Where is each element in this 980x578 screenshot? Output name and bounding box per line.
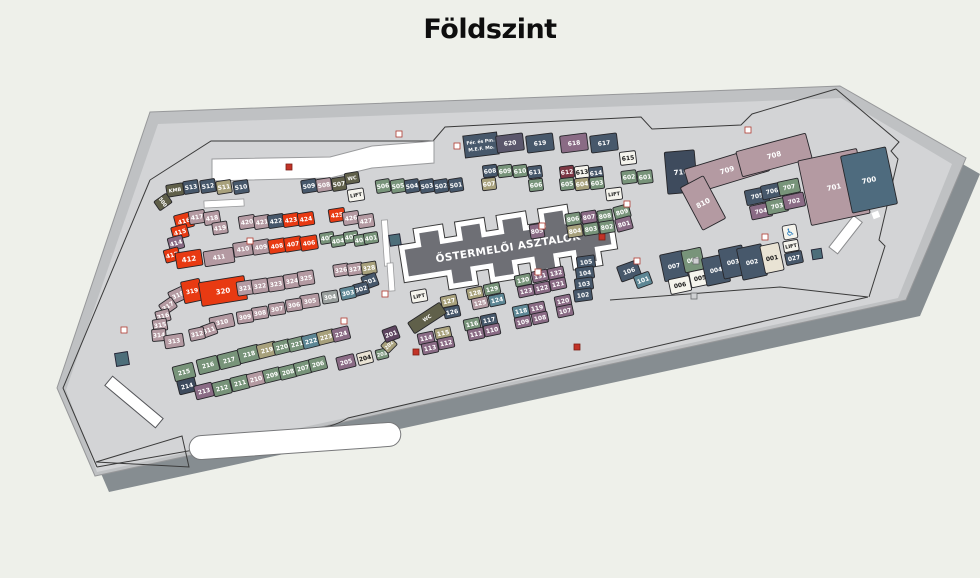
safety-marker [396, 131, 402, 137]
stall-612[interactable]: 612 [559, 165, 574, 179]
stall-602[interactable]: 602 [621, 170, 637, 185]
stall-label: 619 [533, 139, 546, 147]
stall-615[interactable]: 615 [619, 151, 636, 166]
stall-label: 609 [498, 167, 511, 175]
stall-kmb[interactable]: KMB [166, 183, 185, 198]
stall-601[interactable]: 601 [637, 170, 653, 185]
stall-424[interactable]: 424 [297, 211, 315, 226]
stall-803[interactable]: 803 [583, 222, 600, 236]
stall-401[interactable]: 401 [363, 231, 379, 244]
stall-lift[interactable]: LIFT [605, 187, 622, 201]
stall-512[interactable]: 512 [200, 178, 217, 193]
pillar-square [115, 352, 130, 367]
safety-marker [693, 258, 699, 264]
stall-417[interactable]: 417 [188, 209, 206, 224]
stall-label: 617 [597, 139, 610, 147]
handicap-access: ♿ [782, 224, 798, 240]
stall-619[interactable]: 619 [526, 133, 555, 153]
safety-marker [624, 201, 630, 207]
safety-marker [247, 238, 253, 244]
stall-603[interactable]: 603 [589, 176, 604, 190]
stall-lift[interactable]: LIFT [347, 188, 365, 202]
pillar-square [811, 248, 822, 259]
stall-lift[interactable]: LIFT [410, 289, 428, 304]
stall-label: 612 [560, 168, 573, 176]
stall-wc[interactable]: WC [344, 171, 360, 184]
safety-marker [341, 318, 347, 324]
safety-marker [539, 223, 545, 229]
stall-503[interactable]: 503 [419, 178, 435, 193]
stall-label: 601 [638, 173, 651, 181]
safety-marker [574, 344, 580, 350]
stall-419[interactable]: 419 [212, 221, 229, 235]
stall-label: 608 [483, 167, 496, 175]
stall-617[interactable]: 617 [590, 133, 619, 153]
stall-307[interactable]: 307 [268, 302, 286, 316]
stall-label: 604 [575, 180, 588, 188]
safety-marker [634, 258, 640, 264]
safety-marker [745, 127, 751, 133]
stall-511[interactable]: 511 [216, 179, 233, 194]
stall-308[interactable]: 308 [251, 306, 269, 320]
stall-323[interactable]: 323 [267, 276, 285, 292]
stall-label: 602 [622, 173, 635, 181]
safety-marker [599, 234, 605, 240]
stall-306[interactable]: 306 [285, 298, 303, 312]
stall-lift[interactable]: LIFT [783, 239, 800, 252]
stall-610[interactable]: 610 [512, 164, 527, 178]
wheelchair-icon: ♿ [785, 227, 796, 239]
stall-508[interactable]: 508 [316, 177, 333, 192]
stall-611[interactable]: 611 [527, 165, 542, 179]
stall-609[interactable]: 609 [497, 164, 512, 178]
stall-620[interactable]: 620 [496, 133, 525, 153]
stall-322[interactable]: 322 [251, 278, 269, 294]
stall-509[interactable]: 509 [301, 178, 318, 193]
stall-309[interactable]: 309 [236, 310, 254, 324]
stall-804[interactable]: 804 [567, 224, 584, 238]
floorplan-stage: Földszint [0, 0, 980, 578]
stall-501[interactable]: 501 [448, 177, 464, 192]
stall-504[interactable]: 504 [404, 178, 420, 193]
safety-marker [535, 269, 541, 275]
stall-420[interactable]: 420 [238, 214, 256, 229]
stall-406[interactable]: 406 [300, 235, 319, 251]
stall-312[interactable]: 312 [188, 327, 205, 342]
stall-507[interactable]: 507 [331, 176, 347, 191]
stall-505[interactable]: 505 [390, 178, 406, 193]
safety-marker [762, 234, 768, 240]
safety-marker [382, 291, 388, 297]
stall-label: 618 [567, 139, 580, 147]
stall-label: 607 [482, 180, 495, 188]
stall-325[interactable]: 325 [297, 270, 315, 286]
stall-412[interactable]: 412 [175, 249, 203, 269]
stall-618[interactable]: 618 [560, 133, 589, 153]
pillar-square [389, 234, 402, 247]
safety-marker [454, 143, 460, 149]
stall-label: 606 [529, 181, 542, 189]
safety-marker [286, 164, 292, 170]
stall-313[interactable]: 313 [164, 333, 185, 349]
floorplan-svg: ŐSTERMELŐI ASZTALOK Fér. és Pm. M.E.F. M… [0, 0, 980, 578]
stall-607[interactable]: 607 [481, 177, 496, 191]
stall-502[interactable]: 502 [433, 178, 449, 193]
stall-label: 615 [621, 154, 634, 162]
stall-510[interactable]: 510 [233, 179, 250, 194]
stall-608[interactable]: 608 [482, 164, 497, 178]
stall-427[interactable]: 427 [357, 213, 375, 228]
safety-marker [121, 327, 127, 333]
stall-102[interactable]: 102 [573, 288, 592, 302]
safety-marker [691, 293, 697, 299]
stall-label: 611 [528, 168, 541, 176]
stall-605[interactable]: 605 [559, 177, 574, 191]
stall-label: 613 [575, 168, 588, 176]
stall-506[interactable]: 506 [375, 178, 391, 193]
info-box: Fér. és Pm. M.E.F. Mo. [463, 132, 499, 158]
stall-303[interactable]: 303 [339, 286, 356, 301]
stall-label: 605 [560, 180, 573, 188]
stall-606[interactable]: 606 [528, 178, 543, 192]
stall-604[interactable]: 604 [574, 177, 589, 191]
stall-label: 603 [590, 179, 603, 187]
stall-label: 610 [513, 167, 526, 175]
stall-label: 620 [503, 139, 516, 147]
stall-304[interactable]: 304 [321, 290, 339, 304]
stall-802[interactable]: 802 [599, 220, 616, 234]
safety-marker [413, 349, 419, 355]
stall-513[interactable]: 513 [183, 179, 200, 194]
stall-613[interactable]: 613 [574, 165, 589, 179]
